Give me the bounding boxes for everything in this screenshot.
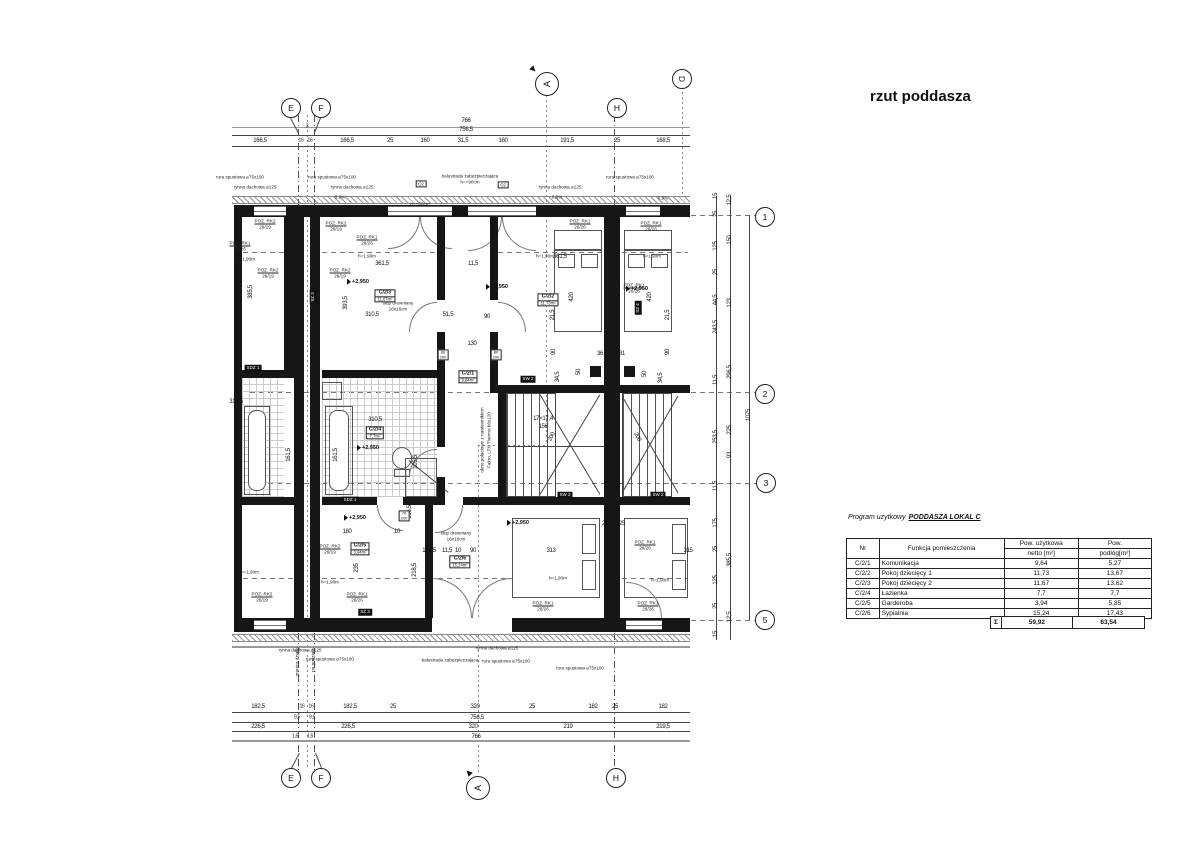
closet [554, 230, 602, 250]
annotation-line: 26/19 [259, 224, 271, 229]
header-nr: Nr [847, 539, 880, 559]
wall-interior-neighbor [284, 217, 294, 378]
dim-label: 361,5 [553, 254, 567, 260]
header-pow-netto-line1: Pow. użytkowa [1005, 539, 1078, 549]
sum-podlog: 63,54 [1073, 617, 1144, 628]
grid-bubble-h: H [607, 98, 627, 118]
wall-interior [498, 385, 506, 505]
dim-label: 50 [576, 369, 582, 375]
annotation-line: h=1,90m [358, 253, 376, 258]
dim-label: 253,5 [713, 430, 719, 444]
dim-label: 50 [642, 371, 648, 377]
pillow [672, 560, 686, 590]
dim-line [232, 146, 690, 147]
chimney [590, 366, 601, 377]
dim-label: 361,5 [375, 261, 389, 267]
annotation-line: 26/26 [574, 224, 586, 229]
dim-label: 25 [387, 138, 393, 144]
door-arc [435, 505, 463, 533]
annotation-label: po podziale [310, 648, 316, 672]
annotation-line: 0,9% [552, 194, 562, 199]
level-marker: +2,950 [507, 520, 529, 526]
dim-label: 10 [394, 529, 400, 535]
annotation-line: POZ. RK1 [357, 235, 378, 240]
annotation-label: granica działki [294, 647, 300, 676]
pillow [582, 524, 596, 554]
dim-label: 15 [713, 631, 719, 637]
annotation-label: h=1,90m [237, 256, 255, 262]
dim-label: 313 [546, 548, 555, 554]
annotation-label: rura spustowa ⌀75x100 [308, 174, 356, 180]
dim-label: 25 [602, 521, 608, 527]
dim-label: 120,5 [422, 548, 436, 554]
annotation-line: 26/26 [234, 246, 246, 251]
annotation-line: rynna dachowa ⌀125 [476, 645, 519, 650]
annotation-label: POZ. RK226/19 [320, 544, 341, 555]
annotation-line: 0,9% [658, 195, 668, 200]
dim-label: 34,5 [555, 372, 561, 382]
attic-height-line [234, 578, 294, 579]
section-marker-label: A [542, 81, 552, 87]
dim-label: 235 [354, 563, 360, 572]
header-pow-podlog: Pow. podłóg[m²] [1078, 539, 1151, 559]
dim-label: 90 [551, 349, 557, 355]
annotation-label: rynna dachowa ⌀125 [539, 184, 582, 190]
dim-label: 175 [713, 518, 719, 527]
dim-label: 166,5 [340, 138, 354, 144]
annotation-label: POZ. RK226/19 [330, 268, 351, 279]
dim-label: 1,5 [307, 735, 313, 740]
annotation-line: rura spustowa ⌀75x100 [606, 174, 654, 179]
annotation-line: POZ. RK2 [252, 592, 273, 597]
annotation-label: h=1,90m [549, 575, 567, 581]
annotation-line: h=1,90m [321, 579, 339, 584]
annotation-label: słup drewniany16x16cm [441, 531, 472, 542]
door-arc [432, 578, 472, 618]
annotation-label: okno połaciowe z nawiewnikiem [479, 407, 485, 472]
annotation-label: POZ. RK126/26 [533, 601, 554, 612]
floor-plan-canvas: 766756,53166,51616166,52516031,5160191,5… [0, 0, 1200, 864]
dim-label: 385,5 [727, 553, 733, 567]
dim-label: 51,5 [443, 312, 453, 318]
wall-interior [437, 370, 445, 505]
cell-pow-netto: 11,73 [1004, 569, 1078, 579]
annotation-line: POZ. RK2 [255, 219, 276, 224]
room-tag: C/2/53,94m² [350, 542, 369, 555]
dim-label: 1075 [746, 409, 752, 421]
wall-exterior-left [234, 205, 242, 632]
annotation-line: h=1,90m [241, 569, 259, 574]
dim-label: 156 [538, 424, 547, 430]
dim-label: 105,5 [413, 455, 419, 469]
annotation-label: balustrada zabezpieczającah=+90cm [442, 174, 499, 185]
wall-interior [322, 370, 445, 378]
cell-funkcja: Garderoba [879, 599, 1004, 609]
cell-funkcja: Łazienka [879, 589, 1004, 599]
dim-label: 123 [727, 298, 733, 307]
annotation-line: rynna dachowa ⌀125 [539, 184, 582, 189]
wall-party-left [310, 205, 320, 632]
dim-label: 90 [484, 314, 490, 320]
annotation-label: balustrada zabezpieczająca [422, 657, 479, 663]
dim-line [232, 731, 690, 732]
grid-bubble-e: E [281, 768, 301, 788]
element-chip: SW 2 [520, 376, 535, 383]
area-table-grid: Nr Funkcja pomieszczenia Pow. użytkowa n… [846, 538, 1152, 619]
dim-label: 17×17,4 [533, 416, 553, 422]
wall-party-left [294, 205, 304, 632]
dim-label: 420 [569, 292, 575, 301]
header-pow-netto: Pow. użytkowa netto [m²] [1004, 539, 1078, 559]
dim-label: 16 [300, 705, 305, 710]
level-marker: +2,950 [344, 515, 366, 521]
level-marker: +2,950 [486, 284, 508, 290]
door-opening [490, 300, 498, 332]
dim-label: 9,5 [309, 716, 315, 721]
cell-nr: C/2/3 [847, 579, 880, 589]
room-tag: C/2/615,24m² [449, 555, 470, 568]
grid-leader [315, 753, 322, 768]
dim-label: 160 [420, 138, 429, 144]
window-opening [626, 620, 662, 630]
annotation-line: granica działki [294, 647, 299, 676]
bathtub-inner [329, 410, 349, 491]
caption-prefix: Program użytkowy [848, 514, 906, 521]
annotation-line: POZ. RK1 [641, 221, 662, 226]
wall-interior [425, 505, 433, 618]
dim-label: 21,5 [665, 310, 671, 320]
table-row: C/2/1Komunikacja9,645,27 [847, 559, 1152, 569]
annotation-line: po podziale [310, 648, 315, 672]
dim-label: 320 [470, 704, 479, 710]
closet-neighbor [624, 230, 672, 250]
dim-label: 93 [727, 452, 733, 458]
element-chip: SW 2 [650, 492, 665, 499]
dim-label: 31 [619, 351, 625, 357]
dim-label: 25 [713, 211, 719, 217]
annotation-line: 16x16cm [389, 306, 408, 311]
dim-label: 150 [727, 235, 733, 244]
annotation-label: rura spustowa ⌀75x100 [216, 174, 264, 180]
section-marker-a: A [535, 72, 559, 96]
dim-label: 226,5 [251, 724, 265, 730]
dim-label: 25 [529, 704, 535, 710]
element-chip: SDZ 1 [245, 365, 262, 372]
annotation-label: 0,9% [552, 194, 562, 200]
dim-label: 182 [588, 704, 597, 710]
ref-line [232, 135, 690, 136]
room-area: 7,7m² [367, 434, 383, 439]
dim-label: 9,5 [294, 716, 300, 721]
element-chip: SW 2 [557, 492, 572, 499]
cell-pow-podlog: 13,62 [1078, 579, 1151, 589]
dim-label: 219 [563, 724, 572, 730]
dim-label: 25 [713, 269, 719, 275]
annotation-label: h=1,90m [536, 253, 554, 259]
door-opening [432, 618, 512, 632]
grid-bubble-label: E [288, 103, 294, 113]
annotation-line: rura spustowa ⌀75x100 [482, 658, 530, 663]
table-header-row: Nr Funkcja pomieszczenia Pow. użytkowa n… [847, 539, 1152, 559]
grid-bubble-label: 1 [763, 212, 768, 222]
annotation-label: POZ. RK126/26 [570, 219, 591, 230]
annotation-line: rynna dachowa ⌀125 [234, 184, 277, 189]
grid-bubble-label: 2 [763, 389, 768, 399]
cell-pow-netto: 7,7 [1004, 589, 1078, 599]
grid-bubble-label: H [613, 773, 619, 783]
dim-label: 3 [306, 125, 308, 130]
grid-bubble-3: 3 [756, 473, 776, 493]
dim-label: 393,5 [343, 296, 349, 310]
door-size-tag: 80200 [438, 349, 449, 360]
annotation-line: 26/26 [642, 606, 654, 611]
table-row: C/2/5Garderoba3,945,85 [847, 599, 1152, 609]
dim-label: 125 [713, 575, 719, 584]
annotation-line: POZ. RK1 [635, 540, 656, 545]
annotation-line: h=1,90m [237, 256, 255, 261]
dim-label: 320 [468, 724, 477, 730]
wall-interior-neighbor [234, 370, 294, 378]
door-size-value: 200 [493, 355, 500, 360]
sum-netto: 59,92 [1002, 617, 1073, 628]
dim-label: 180 [342, 529, 351, 535]
dim-label: 310,5 [229, 399, 243, 405]
wall-party-right [604, 205, 620, 632]
annotation-line: balustrada zabezpieczająca [442, 174, 499, 179]
annotation-line: h=1,90m [643, 253, 661, 258]
dim-label: 25 [390, 704, 396, 710]
wall-interior [498, 385, 604, 393]
wall-interior [498, 497, 604, 505]
dim-label: 756,5 [470, 715, 484, 721]
room-area: 11,73m² [538, 301, 557, 306]
dim-label: 226,5 [341, 724, 355, 730]
grid-bubble-2: 2 [755, 384, 775, 404]
dim-line [232, 712, 690, 713]
dim-label: 219,5 [656, 724, 670, 730]
dim-label: 34,5 [658, 373, 664, 383]
door-arc [502, 217, 536, 251]
annotation-label: rura spustowa ⌀75x100 [606, 174, 654, 180]
wall-exterior-top [240, 205, 690, 217]
annotation-line: 26/19 [256, 597, 268, 602]
dim-label: 218,5 [412, 563, 418, 577]
room-tag: C/2/211,73m² [537, 293, 558, 306]
annotation-label: rynna dachowa ⌀125 [331, 184, 374, 190]
cell-pow-netto: 3,94 [1004, 599, 1078, 609]
annotation-line: 26/26 [351, 597, 363, 602]
caption-title: PODDASZA LOKAL C [909, 514, 981, 521]
element-chip: SZ 4 [635, 301, 642, 315]
annotation-line: słup drewniany [441, 531, 472, 536]
annotation-line: h=+90cm [460, 179, 479, 184]
annotation-label: Fakro, LTK Thermo 66x120 [486, 412, 492, 468]
annotation-label: rura spustowa ⌀75x100 [556, 665, 604, 671]
annotation-line: okno połaciowe z nawiewnikiem [479, 407, 484, 472]
annotation-label: rynna dachowa ⌀125 [234, 184, 277, 190]
header-pow-podlog-line2: podłóg[m²] [1081, 549, 1149, 558]
dim-label: 296,5 [727, 365, 733, 379]
table-caption: Program użytkowyPODDASZA LOKAL C [848, 514, 981, 521]
dim-label: 182 [658, 704, 667, 710]
section-marker-label: A [473, 785, 483, 791]
door-arc [498, 302, 526, 332]
room-tag: C/2/311,67m² [374, 289, 395, 302]
dim-label: 420 [647, 292, 653, 301]
dim-label: 25 [713, 546, 719, 552]
annotation-line: 26/26 [645, 226, 657, 231]
annotation-line: POZ. RK2 [320, 544, 341, 549]
washer [322, 382, 342, 400]
annotation-label: POZ. RK126/26 [635, 540, 656, 551]
annotation-line: rura spustowa ⌀75x100 [308, 174, 356, 179]
room-area: 3,94m² [351, 550, 368, 555]
cell-pow-podlog: 7,7 [1078, 589, 1151, 599]
dim-label: 16 [308, 139, 313, 144]
annotation-line: POZ. RK2 [258, 268, 279, 273]
dim-label: 12,5 [727, 612, 733, 622]
annotation-label: h=1,90m [643, 253, 661, 259]
door-opening [437, 447, 445, 477]
cell-nr: C/2/1 [847, 559, 880, 569]
dim-label: 766 [471, 734, 480, 740]
dim-label: 161,5 [333, 448, 339, 462]
grid-bubble-h: H [606, 768, 626, 788]
dim-label: 21,5 [550, 310, 556, 320]
dim-label: 25 [713, 603, 719, 609]
annotation-line: 26/26 [639, 545, 651, 550]
dim-line [716, 196, 717, 640]
annotation-line: h=+90cm [410, 201, 429, 206]
dim-label: 310,5 [365, 312, 379, 318]
dim-label: 243,5 [713, 320, 719, 334]
dim-label: 44,5 [713, 295, 719, 305]
window-tag: O2 [416, 180, 427, 187]
eave-strip-bottom [232, 634, 690, 642]
cell-nr: C/2/5 [847, 599, 880, 609]
annotation-line: 26/19 [262, 273, 274, 278]
grid-bubble-label: D [677, 76, 687, 82]
level-marker: +2,950 [357, 445, 379, 451]
element-chip: SDZ 1 [342, 497, 359, 504]
dim-label: 36 [597, 351, 603, 357]
door-size-tag: 70200 [399, 510, 410, 521]
cell-pow-podlog: 5,27 [1078, 559, 1151, 569]
dim-label: 161,5 [286, 448, 292, 462]
dim-label: 10 [455, 548, 461, 554]
cell-funkcja: Sypialnia [879, 609, 1004, 619]
ref-line [232, 740, 690, 742]
cell-pow-podlog: 5,85 [1078, 599, 1151, 609]
wall-interior-neighbor [234, 497, 294, 505]
dim-label: 310,5 [368, 417, 382, 423]
grid-bubble-label: E [288, 773, 294, 783]
dim-label: 90 [665, 349, 671, 355]
wall-interior-neighbor [620, 385, 690, 393]
dim-label: 31,5 [458, 138, 468, 144]
window-opening [254, 206, 286, 216]
header-pow-netto-line2: netto [m²] [1007, 549, 1076, 558]
annotation-label: 0,9% [335, 194, 345, 200]
dim-label: 315 [683, 548, 692, 554]
annotation-line: 26/19 [334, 273, 346, 278]
annotation-line: h=1,90m [549, 575, 567, 580]
grid-bubble-5: 5 [755, 610, 775, 630]
window-opening [626, 206, 660, 216]
annotation-line: 16x16cm [447, 536, 466, 541]
annotation-line: POZ. RK1 [347, 592, 368, 597]
dim-label: 12,5 [727, 195, 733, 205]
annotation-label: h=1,90m [241, 569, 259, 575]
dim-label: 125 [713, 241, 719, 250]
table-row: C/2/4Łazienka7,77,7 [847, 589, 1152, 599]
eave-strip-top [232, 196, 690, 204]
header-pow-podlog-line1: Pow. [1079, 539, 1151, 549]
door-size-value: 200 [440, 355, 447, 360]
stair-handrail [506, 446, 604, 447]
dim-label: 130 [467, 341, 476, 347]
window-opening [388, 206, 452, 216]
cell-funkcja: Pokój dziecięcy 2 [879, 579, 1004, 589]
annotation-line: POZ. RK1 [230, 241, 251, 246]
grid-bubble-f: F [311, 98, 331, 118]
dim-label: 160 [498, 138, 507, 144]
dim-label: 15 [713, 193, 719, 199]
dim-line [232, 722, 690, 723]
chimney [624, 366, 635, 377]
dim-label: 11,5 [468, 261, 478, 267]
dim-label: 16 [299, 139, 304, 144]
annotation-line: 26/26 [361, 240, 373, 245]
pillow [581, 254, 598, 268]
pillow [582, 560, 596, 590]
annotation-line: 26/19 [324, 549, 336, 554]
door-arc [388, 217, 420, 249]
grid-line-d [682, 92, 683, 197]
annotation-line: h=1,90m [536, 253, 554, 258]
annotation-label: POZ. RK126/26 [347, 592, 368, 603]
cell-funkcja: Pokój dziecięcy 1 [879, 569, 1004, 579]
room-area: 9,64m² [459, 378, 476, 383]
grid-bubble-label: F [318, 773, 323, 783]
window-opening [468, 206, 536, 216]
dim-label: 166,5 [253, 138, 267, 144]
dim-label: 16 [309, 705, 314, 710]
level-marker: +2,950 [626, 286, 648, 292]
dim-label: 756,5 [459, 127, 473, 133]
grid-bubble-label: 3 [764, 478, 769, 488]
cell-nr: C/2/4 [847, 589, 880, 599]
annotation-label: POZ. RK226/19 [326, 221, 347, 232]
annotation-label: POZ. RK226/19 [255, 219, 276, 230]
room-area: 11,67m² [375, 297, 394, 302]
section-marker-a: A [466, 776, 490, 800]
annotation-line: POZ. RK2 [330, 268, 351, 273]
table-row: C/2/3Pokój dziecięcy 211,6713,62 [847, 579, 1152, 589]
annotation-line: POZ. RK1 [570, 219, 591, 224]
annotation-label: POZ. RK126/26 [641, 221, 662, 232]
window-opening [254, 620, 286, 630]
dim-label: 11,5 [442, 548, 452, 554]
annotation-line: POZ. RK2 [326, 221, 347, 226]
annotation-line: rura spustowa ⌀75x100 [216, 174, 264, 179]
room-tag: C/2/47,7m² [366, 426, 384, 439]
dim-label: 385,5 [248, 285, 254, 299]
dim-label: 25 [612, 704, 618, 710]
door-size-value: 200 [401, 516, 408, 521]
window-tag: O2 [498, 181, 509, 188]
annotation-label: POZ. RK126/26 [230, 241, 251, 252]
